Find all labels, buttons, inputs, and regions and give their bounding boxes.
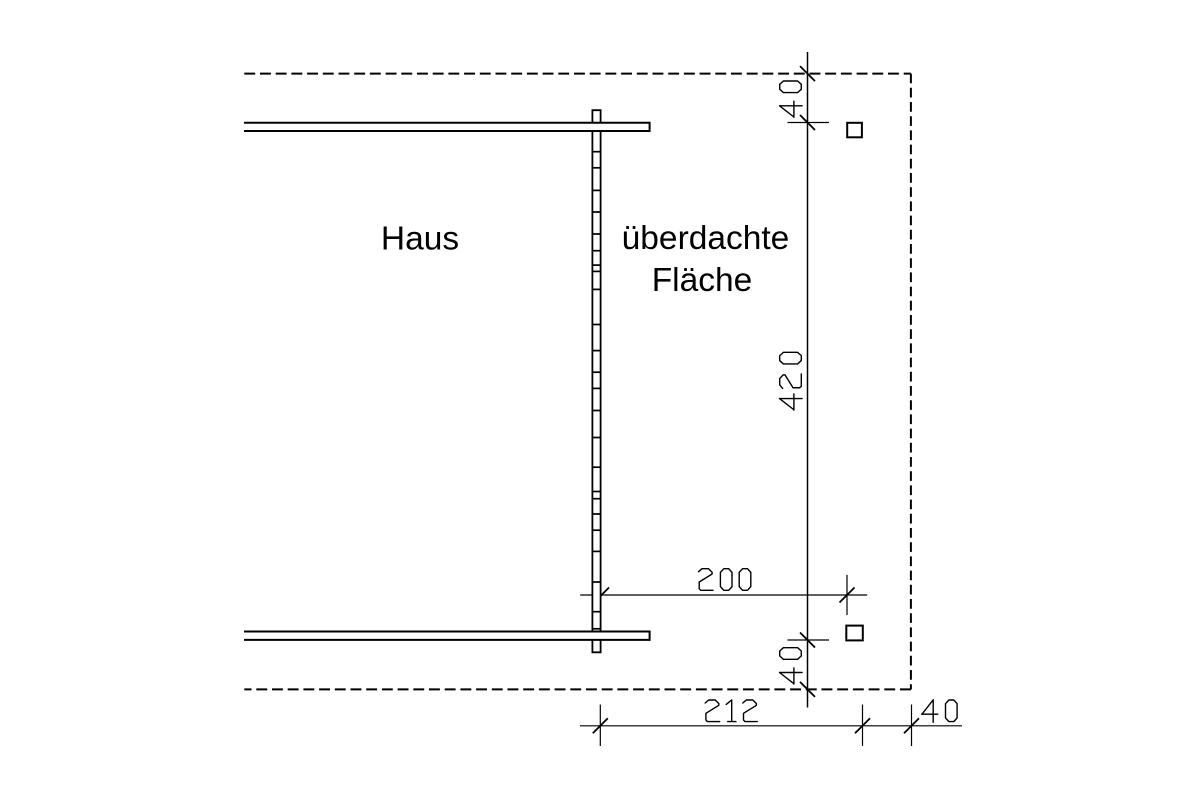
svg-text:Haus: Haus [381,221,459,258]
svg-text:Fläche: Fläche [652,262,753,299]
svg-text:überdachte: überdachte [622,220,790,257]
